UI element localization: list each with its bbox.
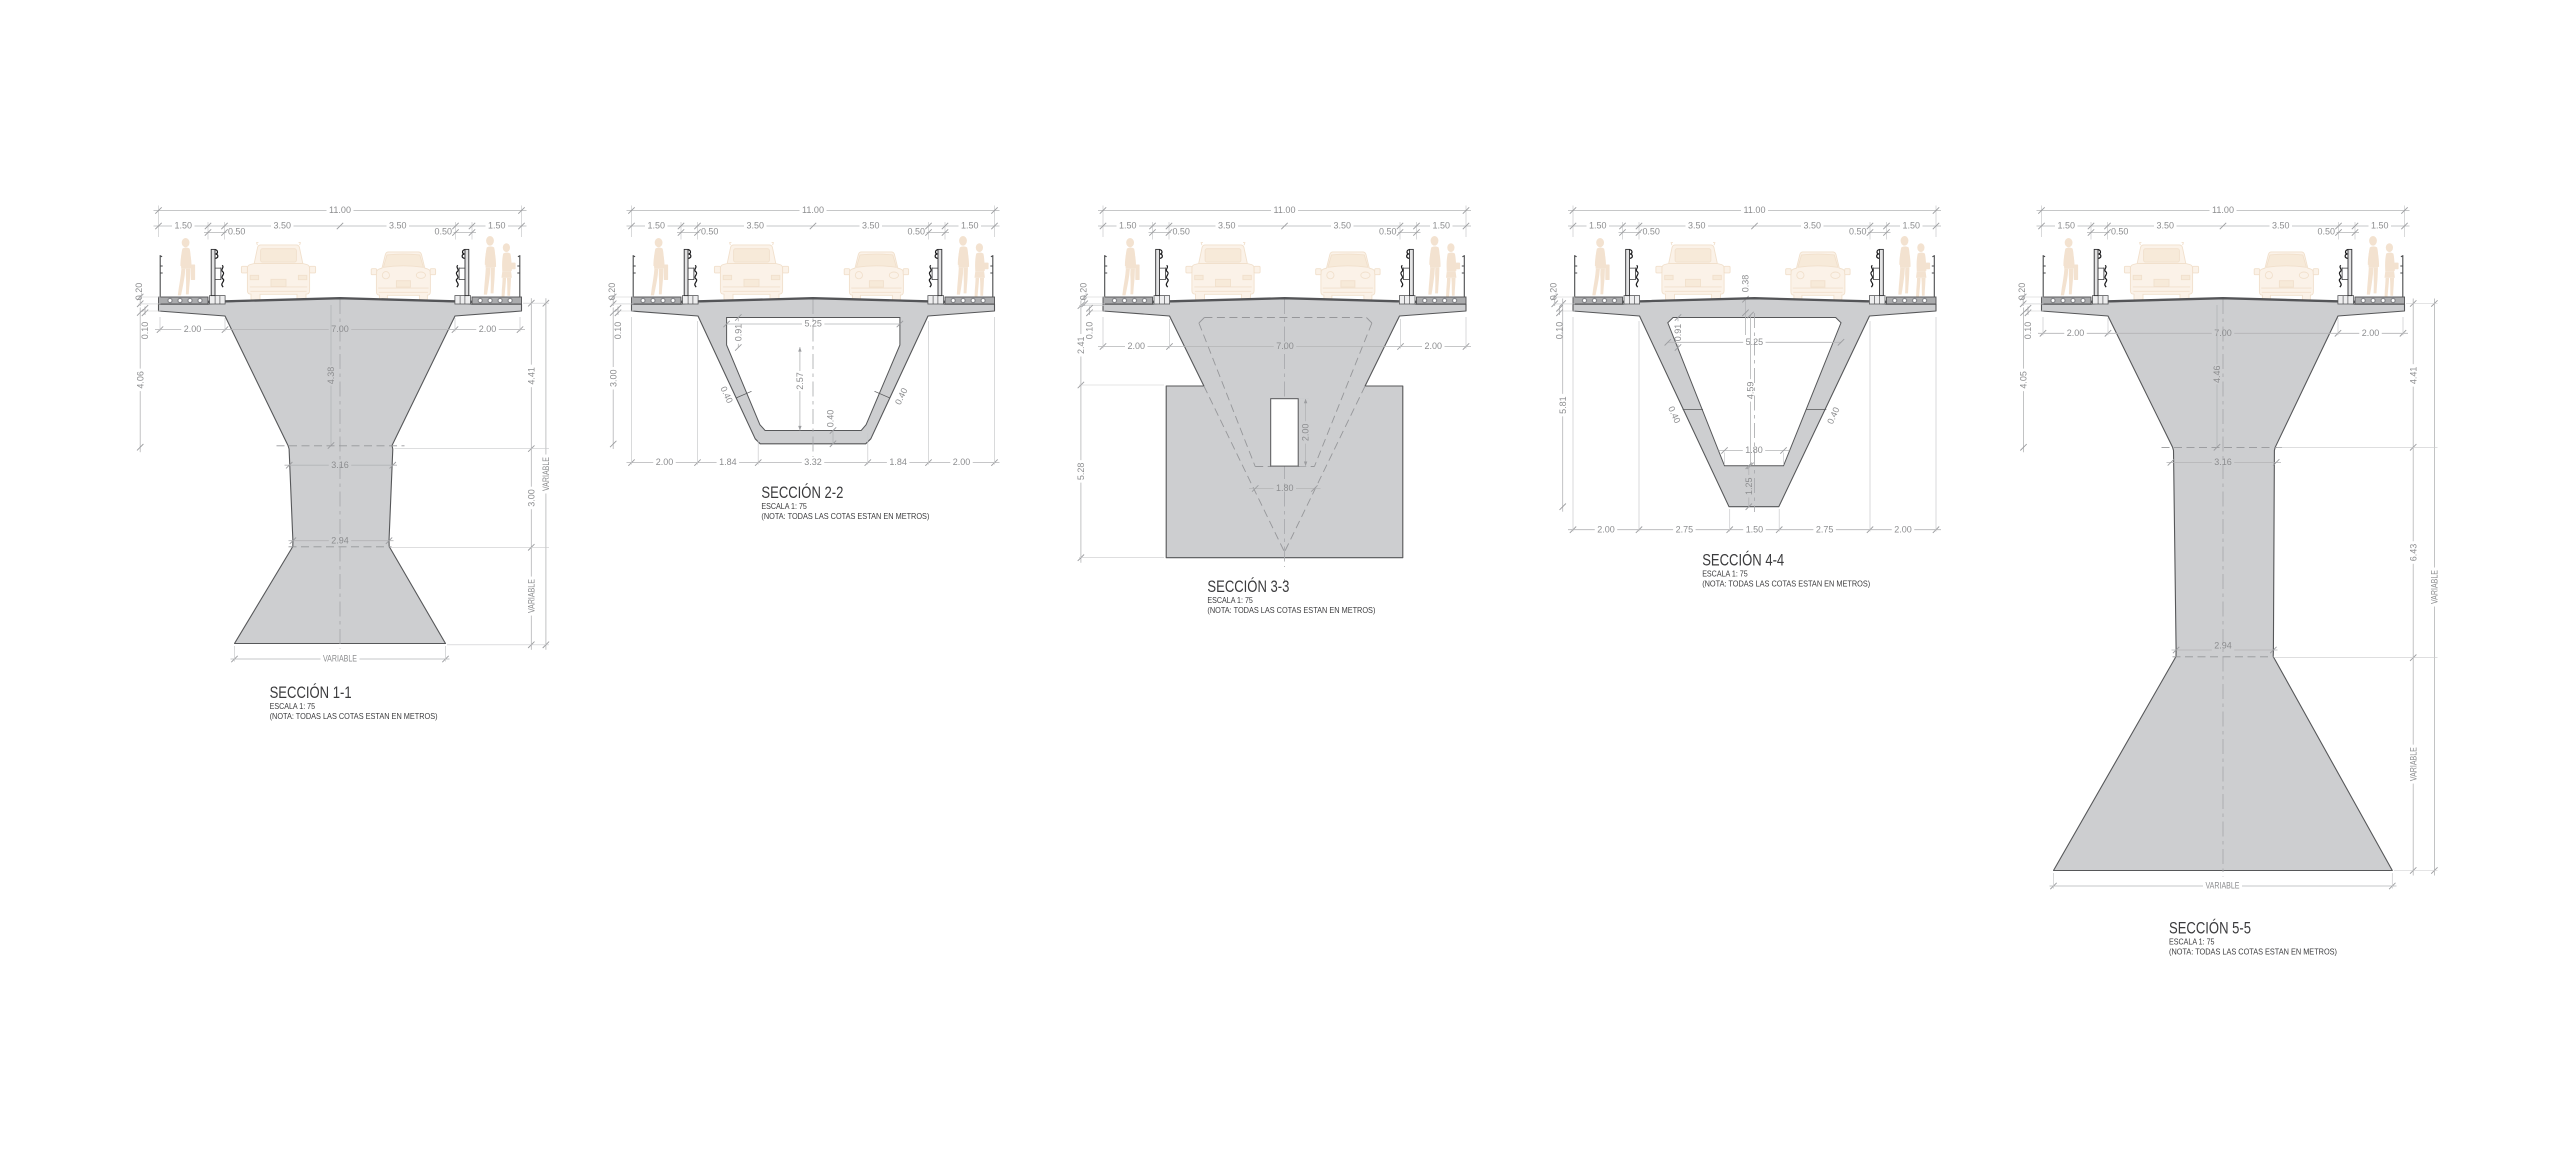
svg-text:(NOTA: TODAS LAS COTAS ESTAN E: (NOTA: TODAS LAS COTAS ESTAN EN METROS) (2169, 947, 2337, 956)
svg-text:4.06: 4.06 (135, 371, 145, 389)
svg-text:4.59: 4.59 (1746, 382, 1756, 400)
svg-text:(NOTA: TODAS LAS COTAS ESTAN E: (NOTA: TODAS LAS COTAS ESTAN EN METROS) (270, 712, 438, 721)
svg-text:ESCALA 1: 75: ESCALA 1: 75 (1207, 596, 1253, 605)
svg-text:2.57: 2.57 (795, 372, 805, 390)
svg-text:ESCALA 1: 75: ESCALA 1: 75 (2169, 937, 2215, 946)
svg-text:VARIABLE: VARIABLE (2206, 881, 2240, 891)
svg-text:5.25: 5.25 (804, 319, 822, 329)
svg-text:4.05: 4.05 (2019, 371, 2029, 389)
svg-text:2.94: 2.94 (2214, 641, 2232, 651)
svg-text:1.80: 1.80 (1745, 445, 1763, 455)
svg-text:VARIABLE: VARIABLE (323, 654, 357, 664)
svg-text:(NOTA: TODAS LAS COTAS ESTAN E: (NOTA: TODAS LAS COTAS ESTAN EN METROS) (1702, 579, 1870, 588)
svg-text:4.41: 4.41 (2408, 367, 2418, 385)
svg-text:SECCIÓN 1-1: SECCIÓN 1-1 (270, 683, 352, 702)
svg-text:2.75: 2.75 (1816, 524, 1834, 534)
svg-text:1.25: 1.25 (1744, 478, 1754, 496)
svg-text:2.00: 2.00 (1425, 341, 1443, 351)
svg-text:6.43: 6.43 (2408, 544, 2418, 562)
svg-text:5.81: 5.81 (1558, 396, 1568, 414)
svg-text:(NOTA: TODAS LAS COTAS ESTAN E: (NOTA: TODAS LAS COTAS ESTAN EN METROS) (761, 512, 929, 521)
svg-text:7.00: 7.00 (331, 324, 349, 334)
svg-text:3.00: 3.00 (608, 370, 618, 388)
svg-text:(NOTA: TODAS LAS COTAS ESTAN E: (NOTA: TODAS LAS COTAS ESTAN EN METROS) (1207, 606, 1375, 615)
svg-text:VARIABLE: VARIABLE (2430, 570, 2440, 604)
svg-text:VARIABLE: VARIABLE (2408, 747, 2418, 781)
svg-text:2.00: 2.00 (1894, 524, 1912, 534)
svg-text:0.91: 0.91 (733, 324, 743, 342)
svg-text:4.38: 4.38 (326, 367, 336, 385)
svg-text:2.75: 2.75 (1676, 524, 1694, 534)
svg-text:3.16: 3.16 (331, 460, 349, 470)
svg-text:4.46: 4.46 (2212, 366, 2222, 384)
svg-text:VARIABLE: VARIABLE (541, 457, 551, 491)
svg-text:7.00: 7.00 (1276, 341, 1294, 351)
svg-text:2.00: 2.00 (479, 324, 497, 334)
svg-text:3.00: 3.00 (526, 489, 536, 507)
svg-text:2.00: 2.00 (184, 324, 202, 334)
svg-text:3.32: 3.32 (804, 457, 822, 467)
svg-text:SECCIÓN 3-3: SECCIÓN 3-3 (1207, 577, 1289, 596)
svg-text:1.84: 1.84 (889, 457, 907, 467)
svg-text:SECCIÓN 2-2: SECCIÓN 2-2 (761, 483, 843, 502)
svg-text:3.16: 3.16 (2214, 457, 2232, 467)
svg-text:5.28: 5.28 (1076, 463, 1086, 481)
svg-text:0.40: 0.40 (826, 410, 836, 428)
svg-text:1.80: 1.80 (1276, 483, 1294, 493)
svg-text:0.38: 0.38 (1741, 275, 1751, 293)
svg-text:2.94: 2.94 (331, 535, 349, 545)
svg-text:2.00: 2.00 (656, 457, 674, 467)
svg-text:2.00: 2.00 (1128, 341, 1146, 351)
svg-text:2.00: 2.00 (953, 457, 971, 467)
svg-text:VARIABLE: VARIABLE (526, 579, 536, 613)
svg-text:SECCIÓN 4-4: SECCIÓN 4-4 (1702, 550, 1784, 569)
svg-text:5.25: 5.25 (1746, 337, 1764, 347)
svg-text:0.91: 0.91 (1673, 324, 1683, 342)
svg-text:1.50: 1.50 (1746, 524, 1764, 534)
svg-text:ESCALA 1: 75: ESCALA 1: 75 (1702, 569, 1748, 578)
svg-text:2.00: 2.00 (1301, 424, 1311, 442)
svg-text:2.00: 2.00 (1597, 524, 1615, 534)
svg-text:2.00: 2.00 (2362, 328, 2380, 338)
svg-text:4.41: 4.41 (526, 367, 536, 385)
svg-text:2.00: 2.00 (2067, 328, 2085, 338)
svg-text:1.84: 1.84 (719, 457, 737, 467)
svg-text:ESCALA 1: 75: ESCALA 1: 75 (270, 702, 316, 711)
svg-text:ESCALA 1: 75: ESCALA 1: 75 (761, 502, 807, 511)
svg-text:SECCIÓN 5-5: SECCIÓN 5-5 (2169, 918, 2251, 937)
